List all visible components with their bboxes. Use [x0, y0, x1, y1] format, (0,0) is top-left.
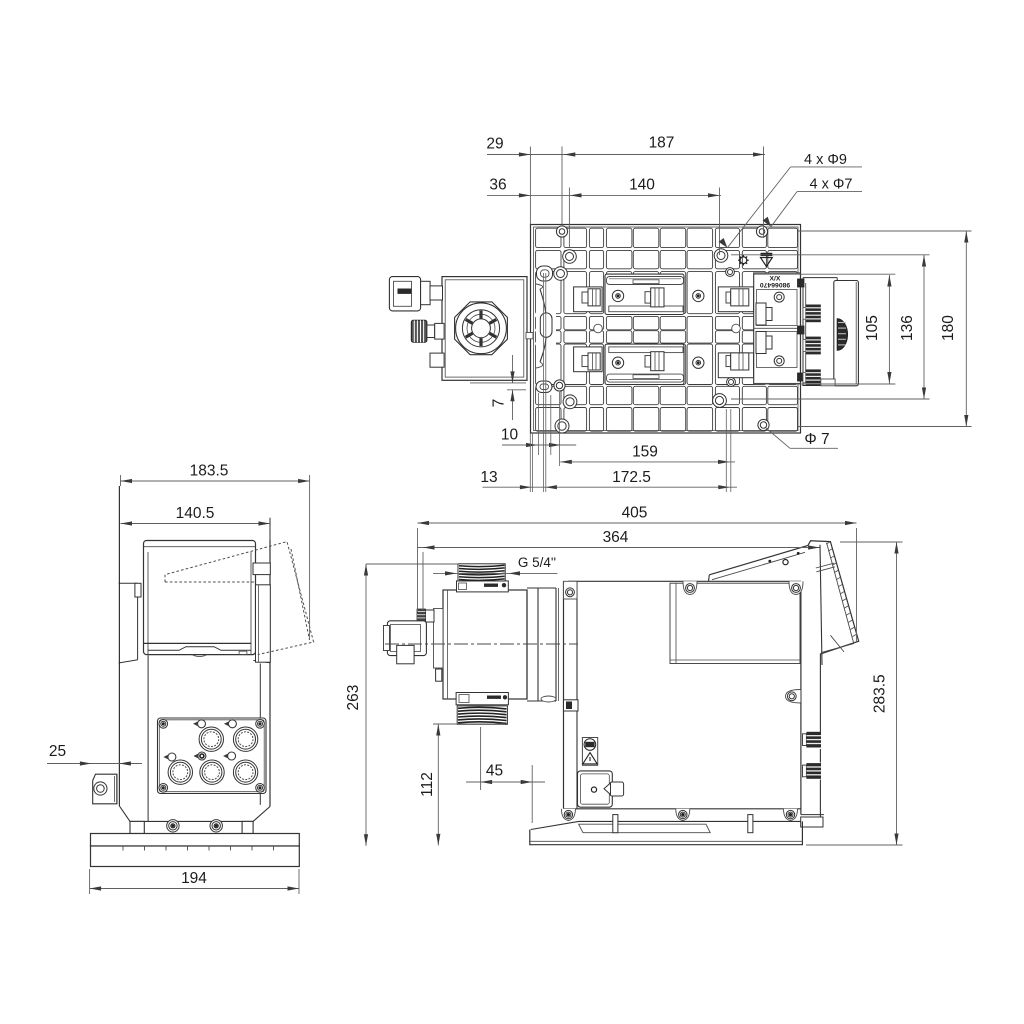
svg-text:105: 105	[864, 315, 881, 341]
svg-text:4 x Φ7: 4 x Φ7	[809, 177, 852, 193]
svg-text:4 x Φ9: 4 x Φ9	[804, 152, 847, 168]
svg-text:Φ 7: Φ 7	[804, 431, 829, 448]
svg-text:10: 10	[501, 427, 519, 444]
svg-text:45: 45	[486, 763, 503, 780]
svg-text:98066470: 98066470	[760, 281, 790, 288]
svg-text:136: 136	[899, 315, 916, 341]
svg-text:187: 187	[649, 135, 675, 152]
svg-text:159: 159	[632, 444, 658, 461]
svg-text:180: 180	[940, 315, 957, 341]
svg-text:13: 13	[480, 469, 497, 486]
svg-text:112: 112	[419, 772, 436, 797]
svg-text:140: 140	[629, 177, 655, 194]
svg-text:183.5: 183.5	[190, 463, 229, 480]
svg-text:36: 36	[489, 177, 506, 194]
svg-text:140.5: 140.5	[176, 505, 215, 522]
svg-text:194: 194	[181, 870, 207, 887]
svg-text:29: 29	[486, 136, 503, 153]
svg-text:172.5: 172.5	[612, 469, 651, 486]
svg-text:25: 25	[49, 743, 66, 760]
svg-text:7: 7	[491, 399, 508, 408]
svg-text:263: 263	[345, 685, 362, 711]
svg-text:283.5: 283.5	[872, 674, 889, 713]
svg-text:364: 364	[603, 529, 629, 546]
svg-text:405: 405	[622, 505, 648, 522]
svg-text:G 5/4'': G 5/4''	[518, 555, 556, 570]
